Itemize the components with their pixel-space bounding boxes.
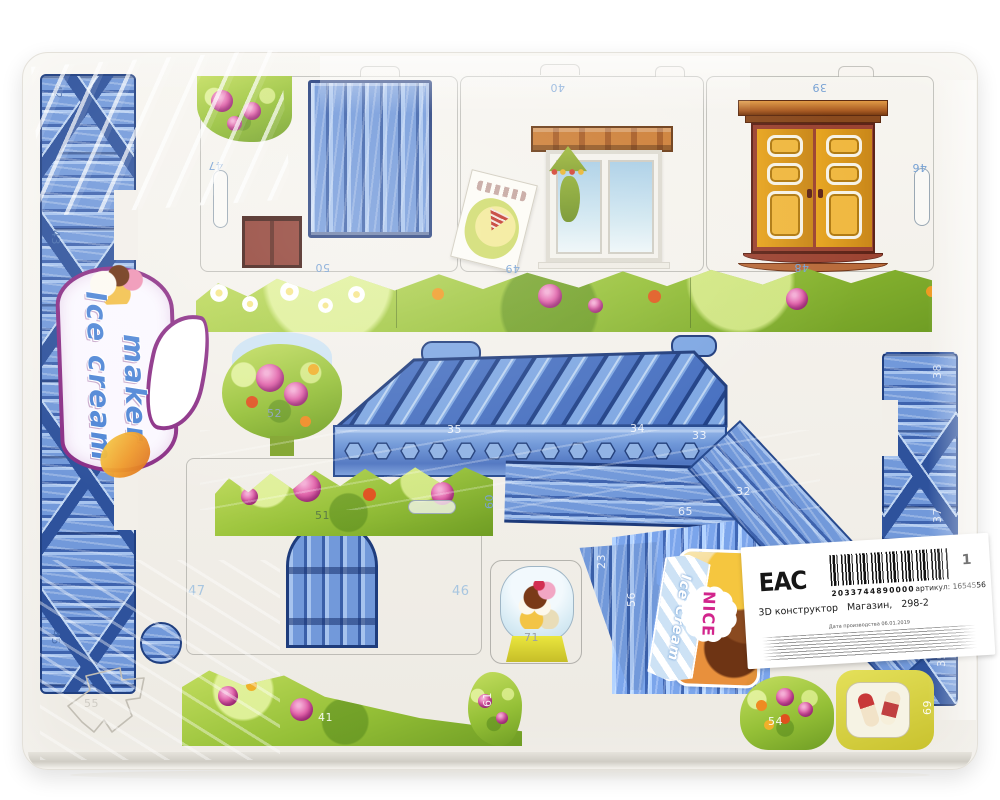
- arrow-diecut-outline: [56, 662, 148, 750]
- door-panel: [826, 163, 862, 185]
- piece-number-34: 34: [630, 423, 645, 434]
- orange-flower: [756, 700, 767, 711]
- red-flower: [246, 396, 258, 408]
- piece-number-45: 45: [50, 630, 61, 645]
- barcode-number: 2033744890000: [831, 584, 915, 598]
- barcode: [829, 548, 949, 586]
- peony-flower: [211, 90, 233, 112]
- piece-number-54: 54: [768, 716, 783, 727]
- piece-number-38: 38: [932, 364, 943, 379]
- piece-number-23: 23: [596, 554, 607, 569]
- piece-number-52: 52: [267, 408, 282, 419]
- label-quantity: 1: [961, 552, 972, 569]
- piece-number-65: 65: [678, 506, 693, 517]
- bush-base-tab: [270, 436, 294, 456]
- door-leaf-left: [757, 129, 813, 247]
- piece-number-32: 32: [736, 486, 751, 497]
- door-leaf-right: [816, 129, 872, 247]
- piece-number-55: 55: [84, 698, 99, 709]
- orange-flower: [432, 288, 444, 300]
- product-photo: Ice cream maker: [0, 0, 1000, 800]
- daisy-flower: [318, 298, 333, 313]
- piece-number-49: 49: [505, 263, 520, 274]
- peony-flower: [284, 382, 308, 406]
- piece-number-39: 39: [812, 82, 827, 93]
- piece-number-37: 37: [932, 508, 943, 523]
- red-flower: [363, 488, 376, 501]
- peony-flower: [218, 686, 238, 706]
- door-panel: [826, 191, 862, 239]
- piece-number-48: 48: [794, 262, 809, 273]
- peony-flower: [776, 688, 794, 706]
- peony-flower: [798, 702, 813, 717]
- orange-flower: [300, 416, 311, 427]
- piece-number-56: 56: [626, 592, 637, 607]
- daisy-flower: [348, 286, 365, 303]
- peony-flower: [538, 284, 562, 308]
- diecut-slot: [408, 500, 456, 514]
- piece-number-71: 71: [524, 632, 539, 643]
- door-body: [751, 123, 875, 253]
- piece-number-51: 51: [315, 510, 330, 521]
- piece-number-42: 42: [52, 84, 63, 99]
- door-panel: [826, 135, 862, 157]
- eac-mark: EAC: [758, 566, 807, 598]
- diecut-slot: [213, 170, 228, 228]
- flower-bush-piece: [740, 676, 834, 750]
- peony-flower: [256, 364, 284, 392]
- bush-foliage: [222, 344, 342, 440]
- starburst-icon: NICE: [677, 582, 741, 646]
- peony-flower: [243, 102, 261, 120]
- piece-number-46b: 46: [452, 585, 470, 598]
- lamp-fringe: [551, 169, 585, 175]
- bars-illustration: [846, 682, 910, 738]
- piece-number-43: 43: [50, 230, 61, 245]
- door-panel: [767, 163, 803, 185]
- sku-number: артикул: 1654556: [915, 580, 986, 593]
- board-edge: [28, 752, 972, 768]
- diecut-tab: [655, 66, 685, 77]
- daisy-flower: [242, 296, 258, 312]
- peony-flower: [227, 116, 242, 131]
- shrink-wrap-edge: [70, 769, 930, 781]
- piece-number-60: 60: [484, 494, 495, 509]
- door-handle: [818, 189, 823, 198]
- piece-number-61: 61: [482, 692, 493, 707]
- product-label-sticker: EAC 1 2033744890000 артикул: 1654556 3D …: [741, 533, 996, 669]
- flower-bush-piece: [222, 330, 342, 458]
- window-sill: [538, 262, 670, 269]
- diecut-tab: [838, 66, 874, 77]
- sundae-illustration: [511, 581, 565, 629]
- door-cornice: [738, 100, 888, 116]
- wooden-lintel: [531, 126, 673, 152]
- brown-double-door: [738, 100, 888, 276]
- ice-cream-bars-piece: [836, 670, 934, 750]
- ice-cream-bar: [856, 692, 881, 729]
- yellow-flower: [308, 364, 319, 375]
- small-maroon-window: [242, 216, 302, 268]
- strip-notch: [114, 190, 138, 260]
- piece-number-47: 47: [208, 160, 223, 171]
- ice-cream-bar: [879, 690, 902, 727]
- piece-number-41: 41: [318, 712, 333, 723]
- door-step: [743, 253, 883, 263]
- piece-number-69: 69: [922, 700, 933, 715]
- door-panel: [767, 191, 803, 239]
- arched-blue-door: [286, 520, 378, 648]
- burst-text: NICE: [677, 582, 741, 646]
- diecut-tab: [540, 64, 580, 75]
- diecut-tab: [360, 66, 400, 77]
- logo-text-line2: maker: [117, 333, 154, 443]
- piece-number-40: 40: [550, 82, 565, 93]
- door-handle: [807, 189, 812, 198]
- peony-flower: [588, 298, 603, 313]
- piece-number-46: 46: [912, 162, 927, 173]
- diecut-slot: [914, 168, 930, 226]
- piece-number-35: 35: [447, 424, 462, 435]
- door-panel: [767, 135, 803, 157]
- peony-flower: [786, 288, 808, 310]
- peony-flower: [290, 698, 313, 721]
- door-cornice-step: [745, 115, 881, 123]
- piece-number-47b: 47: [188, 585, 206, 598]
- red-flower: [648, 290, 661, 303]
- strip-round-tab: [140, 622, 182, 664]
- strip-notch: [882, 400, 898, 456]
- peony-flower: [496, 712, 508, 724]
- piece-number-50: 50: [315, 262, 330, 273]
- window-pane: [608, 160, 654, 254]
- logo-text-line1: Ice cream: [79, 291, 118, 463]
- logo-plate: Ice cream maker: [48, 253, 208, 484]
- blue-plank-door: [308, 80, 432, 238]
- piece-number-33: 33: [692, 430, 707, 441]
- product-title: 3D конструктор Магазин, 298-2: [758, 597, 929, 618]
